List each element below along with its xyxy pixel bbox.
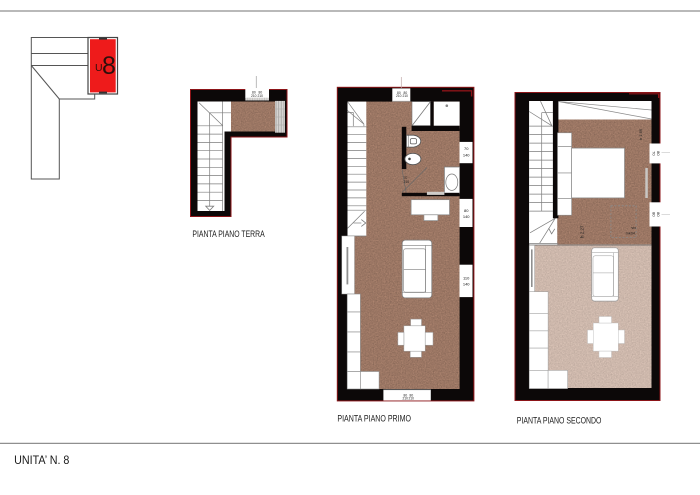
svg-text:mk04.: mk04. (626, 232, 636, 236)
svg-text:210: 210 (404, 180, 410, 184)
svg-text:UNITA’ N. 8: UNITA’ N. 8 (14, 453, 70, 467)
svg-text:140: 140 (463, 214, 470, 219)
svg-text:80: 80 (652, 212, 657, 217)
svg-text:210: 210 (409, 396, 415, 400)
svg-text:PIANTA PIANO TERRA: PIANTA PIANO TERRA (192, 229, 264, 239)
svg-text:PIANTA PIANO PRIMO: PIANTA PIANO PRIMO (337, 413, 411, 423)
svg-text:8: 8 (102, 52, 116, 80)
svg-text:PIANTA PIANO SECONDO: PIANTA PIANO SECONDO (517, 416, 602, 426)
svg-text:210: 210 (258, 94, 264, 98)
svg-text:h 1.66: h 1.66 (638, 128, 643, 140)
svg-text:210: 210 (396, 94, 402, 98)
svg-text:140: 140 (463, 153, 470, 158)
svg-text:h 2.27: h 2.27 (580, 225, 585, 238)
svg-text:80: 80 (656, 151, 661, 156)
svg-text:80: 80 (464, 208, 469, 213)
svg-text:140: 140 (463, 282, 470, 287)
svg-text:210: 210 (251, 94, 257, 98)
svg-text:110: 110 (463, 276, 470, 281)
svg-text:70: 70 (464, 146, 469, 151)
svg-text:80: 80 (656, 212, 661, 217)
svg-text:vlx: vlx (631, 226, 636, 230)
svg-text:210: 210 (403, 396, 409, 400)
svg-text:210: 210 (403, 94, 409, 98)
svg-text:70: 70 (652, 151, 657, 156)
